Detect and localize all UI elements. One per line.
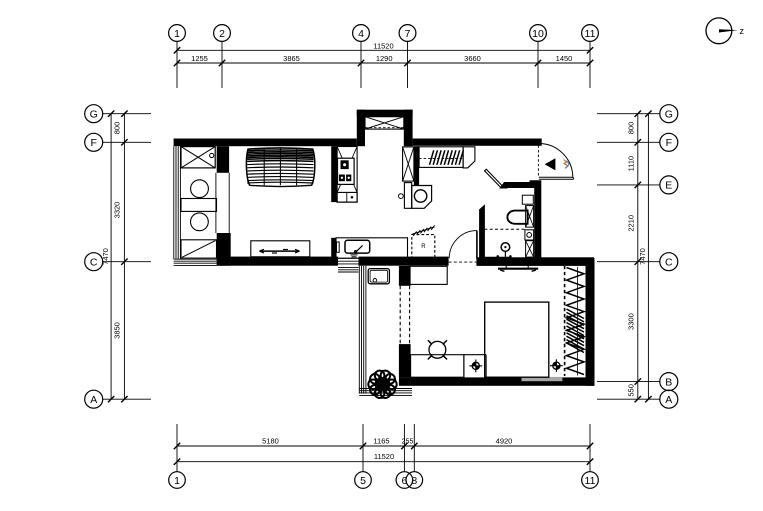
svg-text:G: G (665, 109, 673, 121)
svg-text:10: 10 (532, 28, 544, 40)
svg-text:C: C (90, 257, 98, 269)
svg-text:3850: 3850 (113, 322, 122, 339)
svg-text:4: 4 (358, 28, 364, 40)
svg-text:800: 800 (627, 122, 636, 135)
svg-text:1110: 1110 (627, 156, 636, 172)
svg-text:11520: 11520 (374, 452, 394, 461)
svg-text:7470: 7470 (101, 248, 110, 265)
svg-text:C: C (665, 257, 673, 269)
svg-text:3865: 3865 (283, 54, 300, 63)
svg-text:F: F (666, 137, 672, 149)
svg-text:1: 1 (174, 475, 180, 487)
svg-text:1450: 1450 (556, 54, 573, 63)
svg-text:B: B (665, 376, 672, 388)
svg-text:8: 8 (411, 475, 417, 487)
svg-text:3660: 3660 (464, 54, 481, 63)
svg-text:1290: 1290 (376, 54, 393, 63)
svg-text:550: 550 (627, 384, 636, 397)
svg-text:4920: 4920 (496, 436, 513, 445)
svg-text:11: 11 (585, 475, 596, 487)
svg-text:3320: 3320 (113, 202, 122, 219)
svg-text:7470: 7470 (638, 248, 647, 265)
svg-text:G: G (90, 109, 98, 121)
svg-text:1165: 1165 (373, 436, 389, 445)
svg-text:1: 1 (174, 28, 180, 40)
svg-text:E: E (665, 180, 672, 192)
svg-text:F: F (90, 137, 96, 149)
svg-text:A: A (665, 394, 672, 406)
svg-text:3300: 3300 (627, 313, 636, 330)
svg-text:2: 2 (219, 28, 225, 40)
svg-text:5: 5 (360, 475, 366, 487)
svg-text:5180: 5180 (262, 436, 279, 445)
svg-text:255: 255 (402, 438, 414, 445)
svg-text:7: 7 (405, 28, 411, 40)
svg-text:z: z (739, 26, 744, 36)
svg-text:11520: 11520 (373, 42, 393, 51)
svg-text:A: A (90, 394, 97, 406)
svg-text:2210: 2210 (627, 215, 636, 232)
svg-text:1255: 1255 (191, 54, 208, 63)
svg-text:R: R (421, 244, 426, 250)
svg-text:11: 11 (585, 28, 596, 40)
svg-text:800: 800 (113, 122, 122, 135)
